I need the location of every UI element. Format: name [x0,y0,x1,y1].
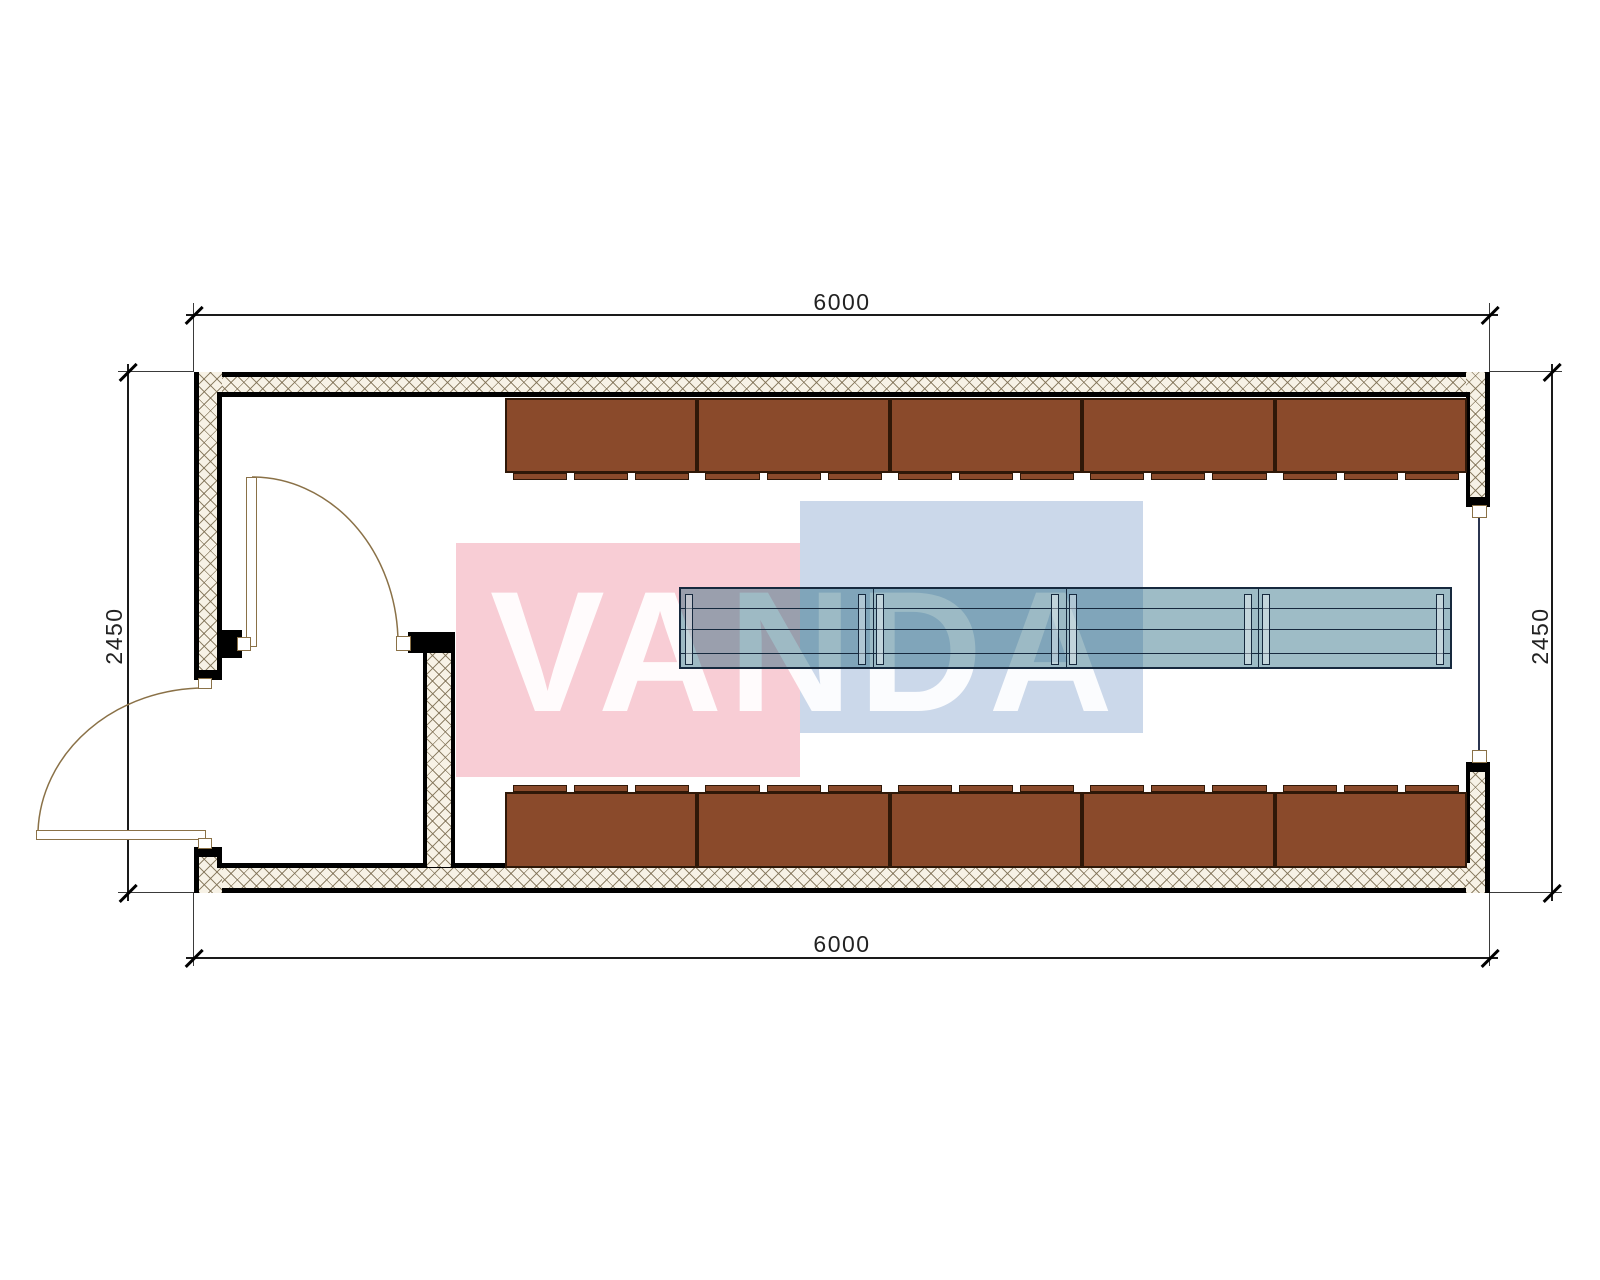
cabinet [505,398,697,473]
table-leg [685,594,693,665]
cabinet-front-segment [1212,473,1266,480]
cabinet-front-segment [705,785,759,792]
partition-cap [408,632,455,653]
cabinet [1275,792,1467,868]
cabinet-front-segment [1283,785,1337,792]
window-jamb [1472,505,1487,518]
cabinet-front-segment [959,473,1013,480]
cabinet-front-segment [1151,473,1205,480]
table-module-joint [873,589,874,667]
table-leg [876,594,884,665]
table-leg [858,594,866,665]
exterior-door-leaf [36,830,206,840]
wall-cap [1466,762,1490,772]
cabinet-front-strip [1090,785,1266,792]
cabinet-front-segment [1283,473,1337,480]
wall-bottom [194,868,1490,893]
cabinet-front-segment [959,785,1013,792]
dimension-line-bottom [186,957,1498,959]
door-jamb [396,636,411,651]
cabinet-front-strip [898,785,1074,792]
door-jamb [198,838,212,849]
cabinet-front-segment [898,473,952,480]
work-table [679,587,1452,669]
cabinet-front-segment [1090,473,1144,480]
cabinet-front-segment [705,473,759,480]
cabinet [505,792,697,868]
cabinet-front-segment [1405,473,1459,480]
cabinet [1082,398,1274,473]
cabinet-front-segment [1090,785,1144,792]
cabinet-front-strip [705,785,881,792]
cabinet-front-strip [705,473,881,480]
cabinet-front-segment [635,473,689,480]
cabinet-front-segment [574,473,628,480]
cabinet-front-segment [1344,473,1398,480]
window-glass-line [1478,517,1480,751]
cabinet-front-strip [898,473,1074,480]
door-jamb [237,637,251,651]
cabinet [1275,398,1467,473]
interior-door-leaf [246,477,257,647]
cabinet-front-segment [1212,785,1266,792]
cabinet-front-segment [513,473,567,480]
interior-door-arc [252,477,398,640]
cabinet [697,398,889,473]
table-leg [1069,594,1077,665]
cabinet-front-segment [1405,785,1459,792]
cabinet-front-segment [767,785,821,792]
table-module-joint [1258,589,1259,667]
cabinet-front-segment [574,785,628,792]
cabinet [890,398,1082,473]
cabinet-front-segment [828,785,882,792]
cabinet-front-strip [513,473,689,480]
dim-bottom-label: 6000 [772,933,912,955]
partition-wall [423,632,455,867]
cabinet-front-segment [1151,785,1205,792]
dim-top-label: 6000 [772,291,912,313]
cabinet-front-segment [635,785,689,792]
window-jamb [1472,750,1487,763]
cabinet-front-strip [513,785,689,792]
dim-right-label: 2450 [1529,566,1551,706]
cabinet-front-strip [1283,785,1459,792]
floor-plan-canvas: 6000 6000 2450 2450 [0,0,1600,1280]
wall-inner-line-top [217,392,1466,397]
cabinet-front-strip [1283,473,1459,480]
dim-left-label: 2450 [103,566,125,706]
exterior-door-arc [38,688,205,831]
table-leg [1436,594,1444,665]
table-leg [1262,594,1270,665]
cabinet [890,792,1082,868]
door-jamb [198,678,212,689]
table-module-joint [1066,589,1067,667]
cabinet-front-segment [767,473,821,480]
table-leg [1244,594,1252,665]
cabinet-front-segment [1020,785,1074,792]
cabinet [1082,792,1274,868]
dimension-line-left [127,364,129,901]
table-leg [1051,594,1059,665]
cabinet-front-segment [513,785,567,792]
cabinet-front-segment [828,473,882,480]
cabinet-front-segment [898,785,952,792]
cabinet-front-segment [1020,473,1074,480]
cabinet-front-segment [1344,785,1398,792]
cabinet-front-strip [1090,473,1266,480]
cabinet [697,792,889,868]
